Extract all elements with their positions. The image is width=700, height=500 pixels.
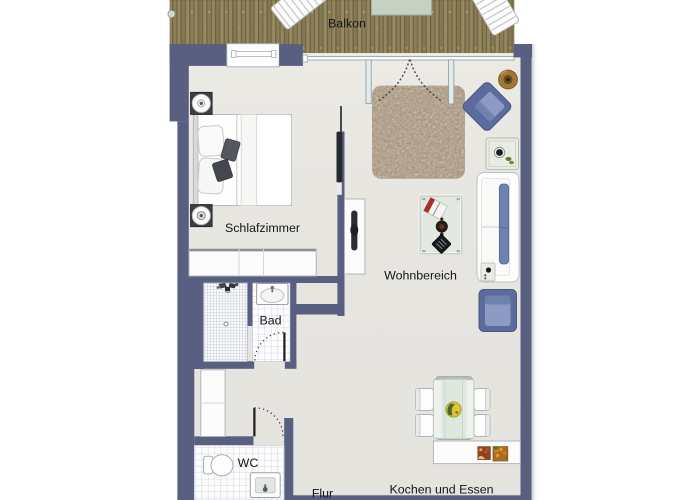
svg-text:Flur: Flur [312,487,333,500]
svg-text:WC: WC [238,456,259,470]
svg-text:Balkon: Balkon [328,16,366,30]
svg-text:Schlafzimmer: Schlafzimmer [225,221,300,235]
svg-text:Wohnbereich: Wohnbereich [384,268,457,282]
svg-text:Bad: Bad [259,314,281,328]
svg-text:Kochen und Essen: Kochen und Essen [389,482,493,496]
